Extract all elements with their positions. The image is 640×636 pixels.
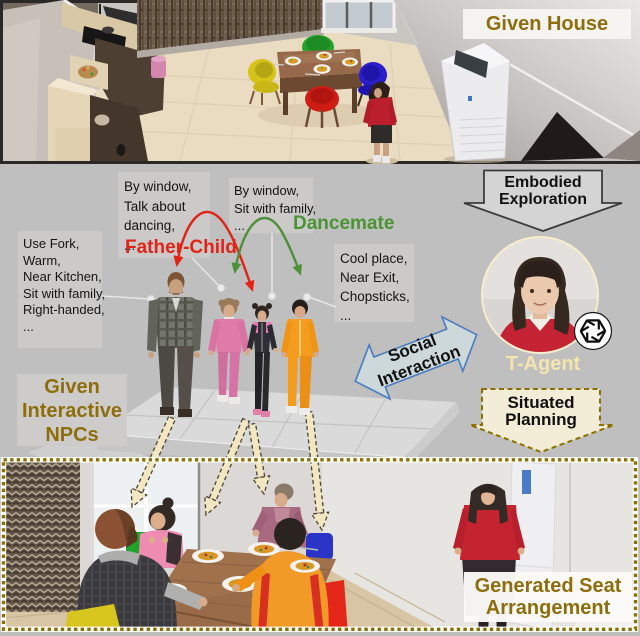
svg-text:Given House: Given House — [486, 13, 608, 35]
